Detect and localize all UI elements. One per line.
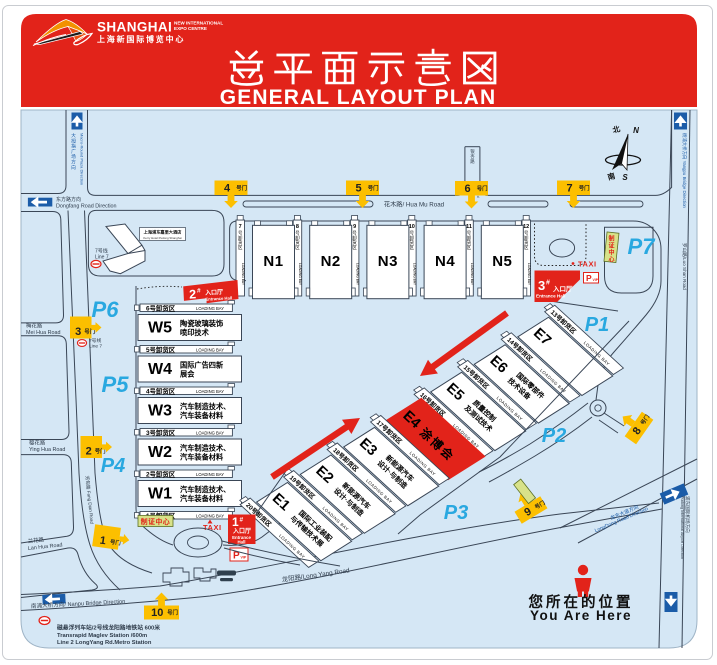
svg-text:磁悬浮列车站/2号线龙阳路地铁站 600米: 磁悬浮列车站/2号线龙阳路地铁站 600米 xyxy=(57,624,160,632)
svg-text:LOADING BAY: LOADING BAY xyxy=(413,263,417,286)
svg-text:LOADING BAY: LOADING BAY xyxy=(196,389,224,394)
svg-text:P3: P3 xyxy=(444,502,468,524)
svg-text:#: # xyxy=(240,517,244,524)
svg-text:杨浦大桥方向 Yangpu Bridge Direction: 杨浦大桥方向 Yangpu Bridge Direction xyxy=(681,133,688,208)
svg-text:6: 6 xyxy=(464,183,470,195)
svg-text:P: P xyxy=(586,273,592,283)
svg-text:10: 10 xyxy=(151,607,163,619)
svg-text:制证中心: 制证中心 xyxy=(141,517,171,526)
svg-text:TAXI: TAXI xyxy=(578,260,597,269)
svg-text:大拇指广场方向: 大拇指广场方向 xyxy=(71,132,76,171)
svg-text:7: 7 xyxy=(566,182,572,194)
svg-text:7号线: 7号线 xyxy=(89,337,101,344)
svg-text:Pudong International Airport D: Pudong International Airport Direction xyxy=(680,496,684,559)
svg-text:2: 2 xyxy=(189,287,197,301)
svg-text:国际广告四新: 国际广告四新 xyxy=(180,361,224,370)
svg-text:Transrapid Maglev Station /60: Transrapid Maglev Station /600m xyxy=(57,633,147,639)
svg-text:N5: N5 xyxy=(492,253,512,270)
svg-text:N: N xyxy=(633,126,639,135)
svg-text:LOADING BAY: LOADING BAY xyxy=(196,513,224,518)
svg-text:号门: 号门 xyxy=(236,184,247,192)
svg-text:号卸货区: 号卸货区 xyxy=(352,231,357,250)
svg-text:LOADING BAY: LOADING BAY xyxy=(527,263,531,286)
svg-text:东方路方向: 东方路方向 xyxy=(56,196,81,203)
svg-text:P2: P2 xyxy=(542,425,566,447)
svg-text:号卸货区: 号卸货区 xyxy=(410,231,415,250)
svg-text:花木路/ Hua Mu Road: 花木路/ Hua Mu Road xyxy=(384,201,445,209)
svg-text:4: 4 xyxy=(224,182,231,194)
svg-text:N3: N3 xyxy=(378,253,398,270)
svg-text:1: 1 xyxy=(232,515,239,529)
svg-text:号卸货区: 号卸货区 xyxy=(295,231,300,250)
svg-text:LOADING BAY: LOADING BAY xyxy=(241,263,245,286)
svg-text:2号卸货区: 2号卸货区 xyxy=(146,469,176,478)
svg-text:号门: 号门 xyxy=(167,609,178,617)
svg-text:4号卸货区: 4号卸货区 xyxy=(146,386,176,395)
svg-text:5号卸货区: 5号卸货区 xyxy=(146,345,176,354)
svg-text:6号卸货区: 6号卸货区 xyxy=(146,303,176,312)
svg-text:NEW INTERNATIONAL: NEW INTERNATIONAL xyxy=(174,21,223,26)
svg-text:上海浦东嘉里大酒店: 上海浦东嘉里大酒店 xyxy=(144,229,183,236)
svg-text:7号线: 7号线 xyxy=(95,248,108,255)
svg-text:入口厅: 入口厅 xyxy=(552,285,573,293)
svg-text:汽车制造技术、: 汽车制造技术、 xyxy=(180,444,230,453)
svg-text:W2: W2 xyxy=(148,444,172,461)
svg-text:N1: N1 xyxy=(263,253,283,270)
svg-text:LOADING BAY: LOADING BAY xyxy=(196,306,224,311)
svg-text:You Are Here: You Are Here xyxy=(530,608,632,623)
svg-text:罗山路/Luo Shan Road: 罗山路/Luo Shan Road xyxy=(681,243,688,290)
svg-text:10: 10 xyxy=(409,224,415,230)
svg-text:5: 5 xyxy=(355,182,361,194)
svg-text:浦东国际机场方向: 浦东国际机场方向 xyxy=(684,496,691,533)
svg-text:制证中心: 制证中心 xyxy=(608,235,614,264)
svg-text:9: 9 xyxy=(353,224,356,230)
svg-text:LOADING BAY: LOADING BAY xyxy=(355,263,359,286)
svg-text:3: 3 xyxy=(538,278,545,293)
svg-text:7: 7 xyxy=(239,224,242,230)
svg-text:上海新国际博览中心: 上海新国际博览中心 xyxy=(97,34,185,44)
svg-text:3号卸货区: 3号卸货区 xyxy=(146,428,176,437)
svg-text:LOADING BAY: LOADING BAY xyxy=(196,347,224,352)
svg-text:LOADING BAY: LOADING BAY xyxy=(470,263,474,286)
svg-text:P4: P4 xyxy=(101,455,125,477)
svg-text:汽车制造技术、: 汽车制造技术、 xyxy=(180,402,230,411)
svg-text:号卸货区: 号卸货区 xyxy=(524,231,529,250)
svg-text:Line 7: Line 7 xyxy=(95,255,109,261)
svg-text:Dongfang Road Direction: Dongfang Road Direction xyxy=(56,204,117,210)
svg-text:LOADING BAY: LOADING BAY xyxy=(196,472,224,477)
svg-text:号门: 号门 xyxy=(477,185,488,193)
svg-text:3: 3 xyxy=(75,326,81,338)
svg-text:8: 8 xyxy=(296,224,299,230)
svg-text:VIP: VIP xyxy=(241,556,247,560)
svg-text:号卸货区: 号卸货区 xyxy=(238,231,243,250)
svg-text:号门: 号门 xyxy=(368,184,379,192)
svg-text:展会: 展会 xyxy=(180,370,195,379)
svg-text:Line 2 LongYang Rd.Metro Stati: Line 2 LongYang Rd.Metro Station xyxy=(57,640,152,646)
svg-text:陶瓷玻璃装饰: 陶瓷玻璃装饰 xyxy=(180,319,223,328)
svg-text:11: 11 xyxy=(466,224,472,230)
svg-text:S: S xyxy=(622,173,628,182)
svg-text:银杏路: 银杏路 xyxy=(470,148,475,165)
svg-text:W3: W3 xyxy=(148,403,172,420)
svg-text:Ying Hua Road: Ying Hua Road xyxy=(29,447,65,453)
svg-text:P6: P6 xyxy=(92,297,120,322)
svg-text:N4: N4 xyxy=(435,253,455,270)
svg-text:Line 7: Line 7 xyxy=(89,344,102,350)
svg-text:汽车装备材料: 汽车装备材料 xyxy=(180,453,224,462)
svg-text:喷印技术: 喷印技术 xyxy=(180,328,210,337)
svg-text:2: 2 xyxy=(86,445,92,457)
svg-text:入口厅: 入口厅 xyxy=(232,527,251,535)
svg-text:汽车装备材料: 汽车装备材料 xyxy=(180,494,224,503)
svg-text:P5: P5 xyxy=(102,372,130,397)
svg-text:12: 12 xyxy=(523,224,529,230)
svg-text:号门: 号门 xyxy=(579,184,590,192)
svg-text:樱花路: 樱花路 xyxy=(29,439,46,447)
svg-text:梅花路: 梅花路 xyxy=(26,322,43,330)
svg-text:LOADING BAY: LOADING BAY xyxy=(298,263,302,286)
svg-text:W1: W1 xyxy=(148,486,172,503)
svg-text:#: # xyxy=(546,280,550,287)
svg-text:W5: W5 xyxy=(148,320,172,337)
svg-text:P7: P7 xyxy=(628,234,657,259)
svg-text:LOADING BAY: LOADING BAY xyxy=(196,430,224,435)
svg-text:Mei Hua Road: Mei Hua Road xyxy=(26,330,60,336)
svg-text:SHANGHAI: SHANGHAI xyxy=(97,20,172,35)
svg-text:N2: N2 xyxy=(321,253,341,270)
svg-text:汽车装备材料: 汽车装备材料 xyxy=(180,411,224,420)
svg-text:Entrance Hall: Entrance Hall xyxy=(536,294,565,299)
svg-text:Hall: Hall xyxy=(237,540,245,545)
svg-text:P1: P1 xyxy=(585,314,609,336)
svg-text:汽车制造技术、: 汽车制造技术、 xyxy=(180,485,230,494)
svg-text:Kerry Hotel Pudong Shanghai: Kerry Hotel Pudong Shanghai xyxy=(143,236,182,240)
svg-text:Macro-Round Plaza Direction: Macro-Round Plaza Direction xyxy=(80,133,85,185)
svg-text:号卸货区: 号卸货区 xyxy=(467,231,472,250)
svg-text:VIP: VIP xyxy=(593,278,599,282)
svg-text:EXPO CENTRE: EXPO CENTRE xyxy=(174,26,207,31)
svg-text:W4: W4 xyxy=(148,361,172,378)
svg-text:GENERAL LAYOUT PLAN: GENERAL LAYOUT PLAN xyxy=(220,86,496,109)
